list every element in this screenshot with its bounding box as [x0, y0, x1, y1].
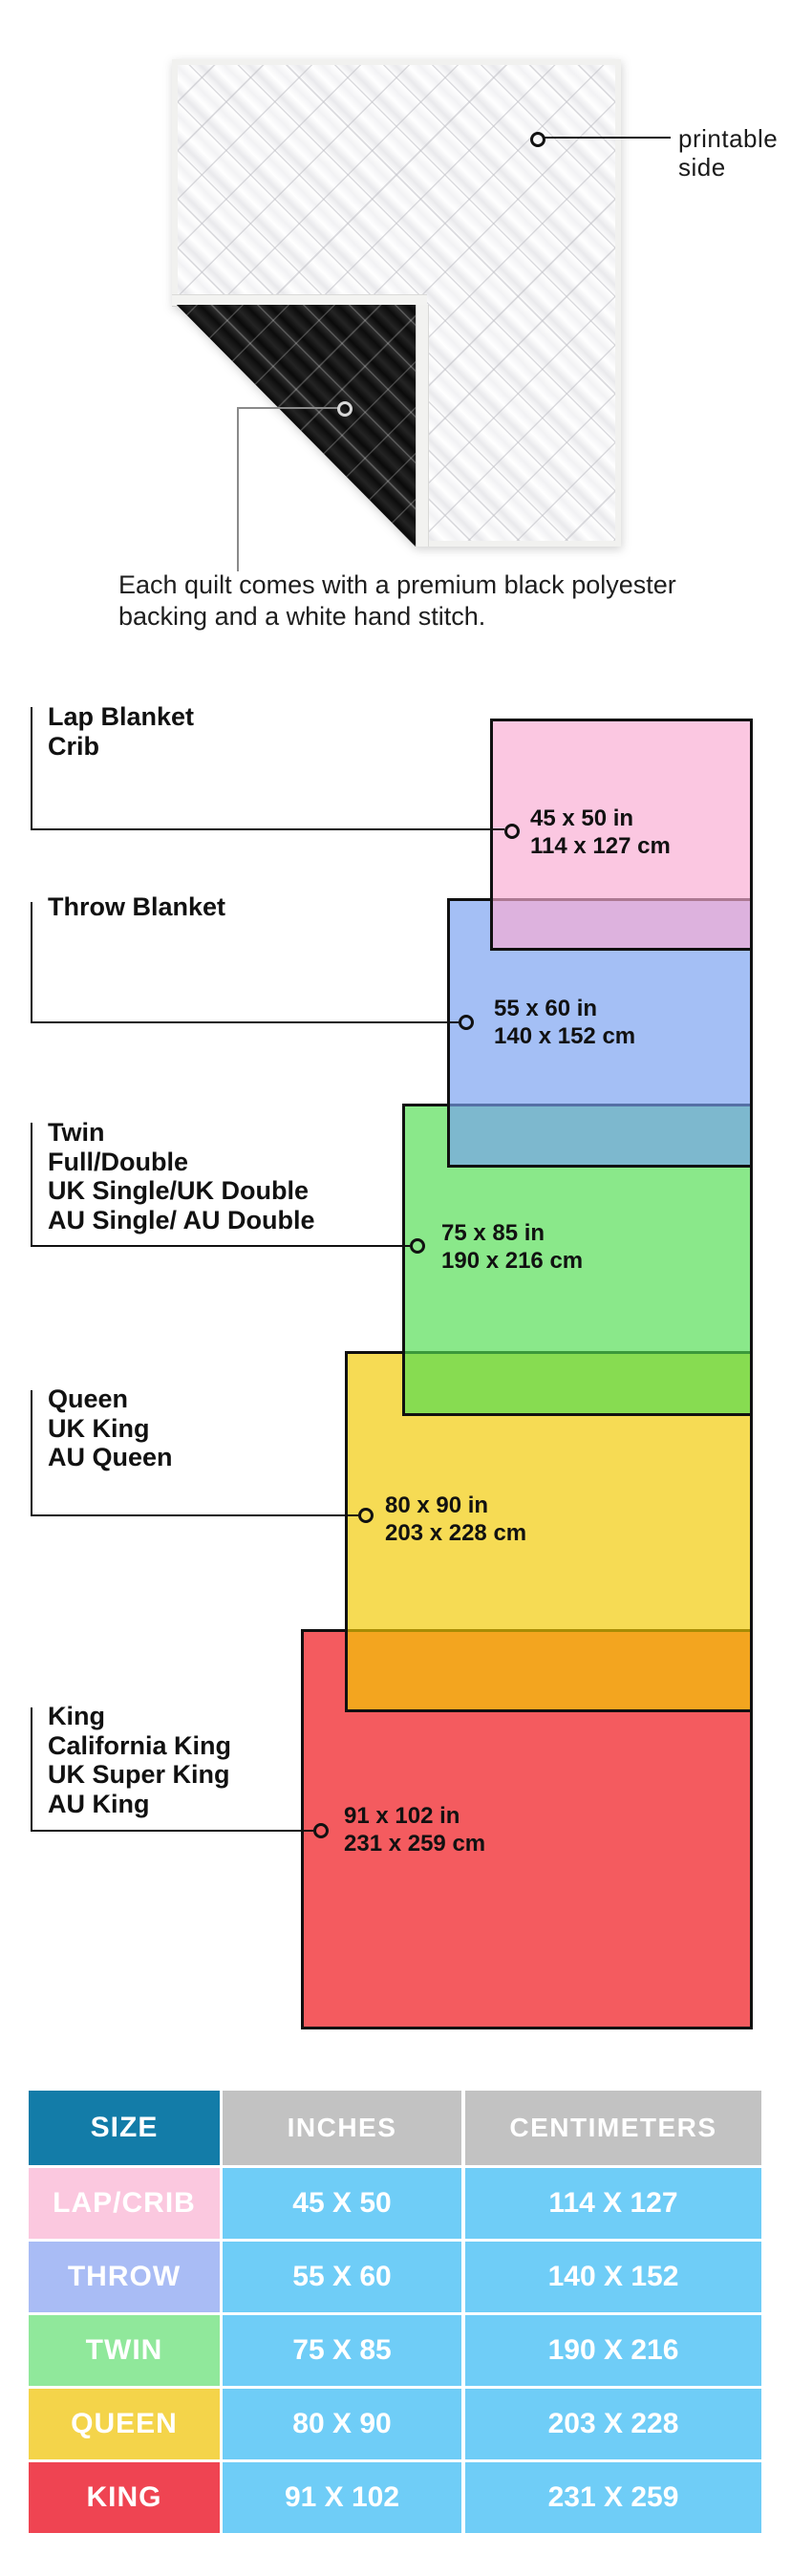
- backing-callout-line-vertical: [237, 407, 239, 571]
- size-label-line: UK Single/UK Double: [48, 1176, 315, 1206]
- size-table: SIZE INCHES CENTIMETERS LAP/CRIB 45 X 50…: [29, 2091, 761, 2533]
- connector-horizontal-throw: [31, 1021, 459, 1023]
- connector-vertical-queen: [31, 1390, 32, 1515]
- dims-centimeters: 190 x 216 cm: [441, 1247, 583, 1275]
- quilt-fold-binding-vertical: [416, 305, 429, 547]
- row-label-cell: THROW: [29, 2242, 220, 2312]
- size-label-queen: Queen UK King AU Queen: [48, 1385, 173, 1472]
- size-label-throw: Throw Blanket: [48, 892, 225, 922]
- backing-dot-icon: [337, 401, 353, 417]
- row-centimeters-cell: 140 X 152: [465, 2242, 761, 2312]
- row-inches-cell: 55 X 60: [223, 2242, 461, 2312]
- size-dims-queen: 80 x 90 in 203 x 228 cm: [385, 1492, 526, 1547]
- dims-centimeters: 231 x 259 cm: [344, 1830, 485, 1857]
- printable-side-label: printable side: [678, 124, 778, 182]
- header-cell-size: SIZE: [29, 2091, 220, 2165]
- row-inches-cell: 75 X 85: [223, 2315, 461, 2386]
- size-label-line: California King: [48, 1731, 231, 1761]
- header-cell-inches: INCHES: [223, 2091, 461, 2165]
- size-dot-lap-icon: [504, 824, 520, 839]
- dims-centimeters: 203 x 228 cm: [385, 1519, 526, 1547]
- header-cell-centimeters: CENTIMETERS: [465, 2091, 761, 2165]
- connector-vertical-lap: [31, 707, 32, 829]
- row-centimeters-cell: 231 X 259: [465, 2462, 761, 2533]
- size-dims-lap-crib: 45 x 50 in 114 x 127 cm: [530, 805, 671, 860]
- size-label-line: AU Queen: [48, 1443, 173, 1472]
- size-label-line: Lap Blanket: [48, 702, 194, 732]
- dims-inches: 91 x 102 in: [344, 1802, 485, 1830]
- row-inches-cell: 45 X 50: [223, 2168, 461, 2239]
- size-dot-throw-icon: [459, 1015, 474, 1030]
- printable-side-label-line1: printable: [678, 124, 778, 153]
- printable-side-callout-line: [543, 137, 671, 139]
- size-label-twin: Twin Full/Double UK Single/UK Double AU …: [48, 1118, 315, 1234]
- connector-horizontal-king: [31, 1830, 313, 1832]
- row-label-cell: KING: [29, 2462, 220, 2533]
- connector-horizontal-queen: [31, 1514, 358, 1516]
- size-dims-throw: 55 x 60 in 140 x 152 cm: [494, 995, 635, 1050]
- dims-inches: 55 x 60 in: [494, 995, 635, 1022]
- row-centimeters-cell: 203 X 228: [465, 2389, 761, 2459]
- size-label-line: AU Single/ AU Double: [48, 1206, 315, 1235]
- dims-inches: 75 x 85 in: [441, 1219, 583, 1247]
- size-label-lap-crib: Lap Blanket Crib: [48, 702, 194, 761]
- connector-vertical-twin: [31, 1123, 32, 1246]
- row-label-cell: QUEEN: [29, 2389, 220, 2459]
- row-label-cell: LAP/CRIB: [29, 2168, 220, 2239]
- printable-side-label-line2: side: [678, 153, 778, 182]
- table-row-throw: THROW 55 X 60 140 X 152: [29, 2242, 761, 2312]
- dims-centimeters: 114 x 127 cm: [530, 832, 671, 860]
- size-dot-twin-icon: [410, 1238, 425, 1254]
- size-dot-queen-icon: [358, 1508, 374, 1523]
- size-label-line: King: [48, 1702, 231, 1731]
- connector-vertical-king: [31, 1707, 32, 1831]
- connector-vertical-throw: [31, 902, 32, 1022]
- row-centimeters-cell: 190 X 216: [465, 2315, 761, 2386]
- dims-inches: 80 x 90 in: [385, 1492, 526, 1519]
- size-label-line: Throw Blanket: [48, 892, 225, 922]
- size-label-line: Twin: [48, 1118, 315, 1148]
- table-header-row: SIZE INCHES CENTIMETERS: [29, 2091, 761, 2165]
- backing-caption: Each quilt comes with a premium black po…: [118, 569, 676, 633]
- backing-caption-line1: Each quilt comes with a premium black po…: [118, 569, 676, 601]
- quilt-photo: [172, 59, 621, 547]
- quilt-black-backing: [177, 305, 416, 547]
- row-inches-cell: 80 X 90: [223, 2389, 461, 2459]
- dims-inches: 45 x 50 in: [530, 805, 671, 832]
- row-centimeters-cell: 114 X 127: [465, 2168, 761, 2239]
- backing-caption-line2: backing and a white hand stitch.: [118, 601, 676, 633]
- table-row-king: KING 91 X 102 231 X 259: [29, 2462, 761, 2533]
- size-label-line: UK King: [48, 1414, 173, 1444]
- size-dims-twin: 75 x 85 in 190 x 216 cm: [441, 1219, 583, 1275]
- size-dot-king-icon: [313, 1823, 329, 1838]
- row-inches-cell: 91 X 102: [223, 2462, 461, 2533]
- size-label-king: King California King UK Super King AU Ki…: [48, 1702, 231, 1818]
- table-row-lap-crib: LAP/CRIB 45 X 50 114 X 127: [29, 2168, 761, 2239]
- dims-centimeters: 140 x 152 cm: [494, 1022, 635, 1050]
- connector-horizontal-lap: [31, 828, 504, 830]
- backing-callout-line-horizontal: [237, 407, 339, 409]
- table-row-queen: QUEEN 80 X 90 203 X 228: [29, 2389, 761, 2459]
- size-label-line: Crib: [48, 732, 194, 762]
- table-row-twin: TWIN 75 X 85 190 X 216: [29, 2315, 761, 2386]
- size-label-line: AU King: [48, 1790, 231, 1819]
- connector-horizontal-twin: [31, 1245, 410, 1247]
- quilt-size-chart-infographic: printable side Each quilt comes with a p…: [0, 0, 791, 2576]
- size-label-line: Queen: [48, 1385, 173, 1414]
- size-dims-king: 91 x 102 in 231 x 259 cm: [344, 1802, 485, 1857]
- size-label-line: Full/Double: [48, 1148, 315, 1177]
- row-label-cell: TWIN: [29, 2315, 220, 2386]
- size-label-line: UK Super King: [48, 1760, 231, 1790]
- printable-side-dot-icon: [530, 132, 545, 147]
